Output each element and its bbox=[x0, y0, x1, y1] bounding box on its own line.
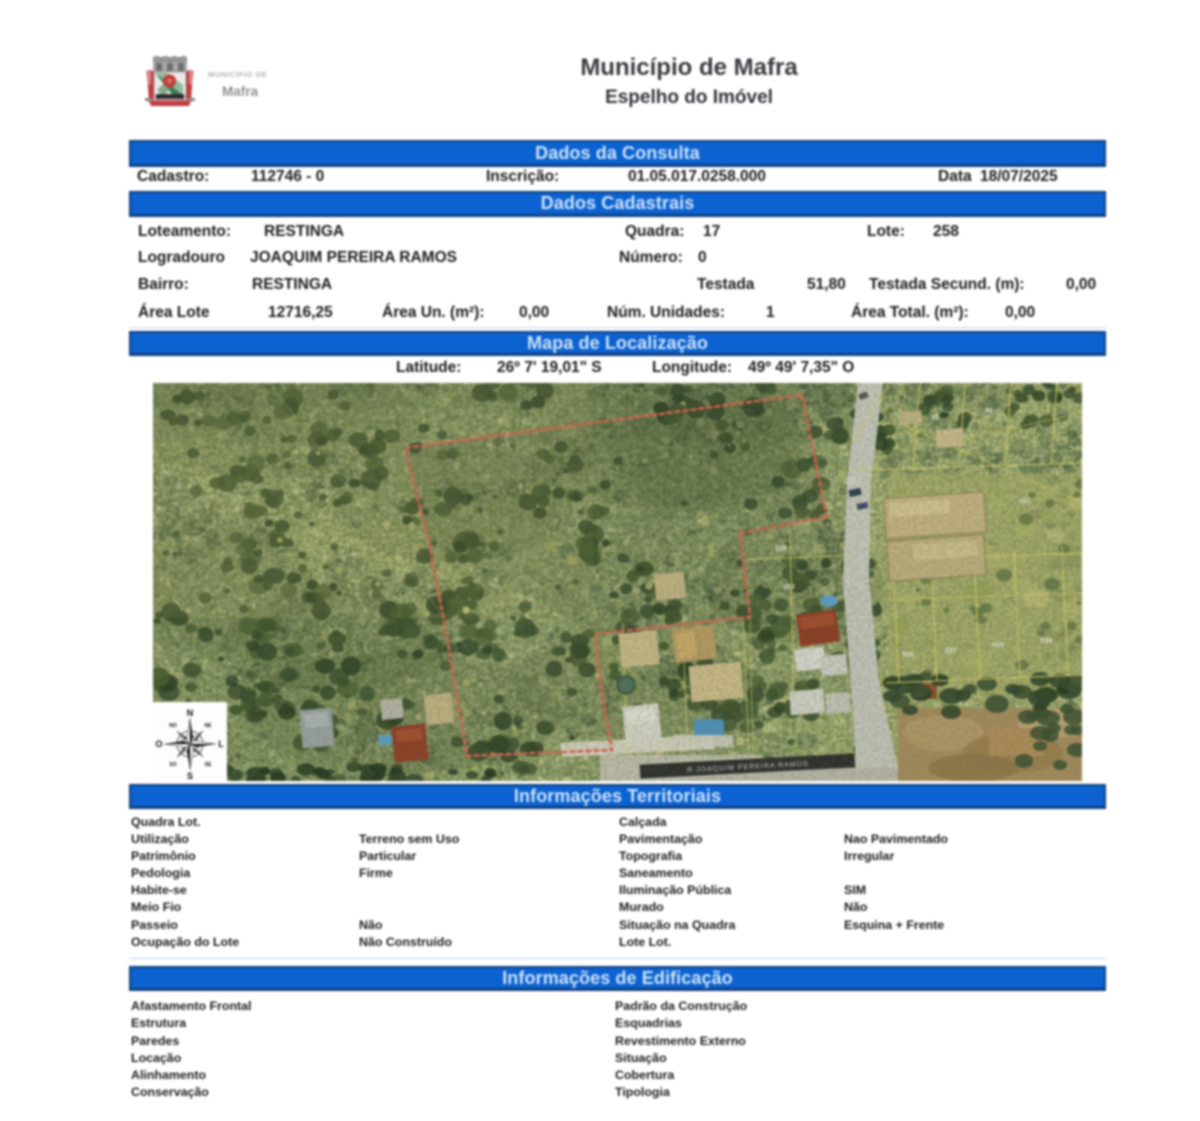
svg-text:S: S bbox=[187, 771, 193, 781]
svg-text:SE: SE bbox=[205, 762, 212, 768]
svg-text:O: O bbox=[155, 739, 162, 749]
svg-text:N: N bbox=[187, 708, 194, 718]
svg-text:L: L bbox=[218, 739, 224, 749]
svg-text:NO: NO bbox=[169, 723, 177, 729]
svg-text:NE: NE bbox=[205, 723, 213, 729]
svg-text:SO: SO bbox=[169, 762, 176, 768]
